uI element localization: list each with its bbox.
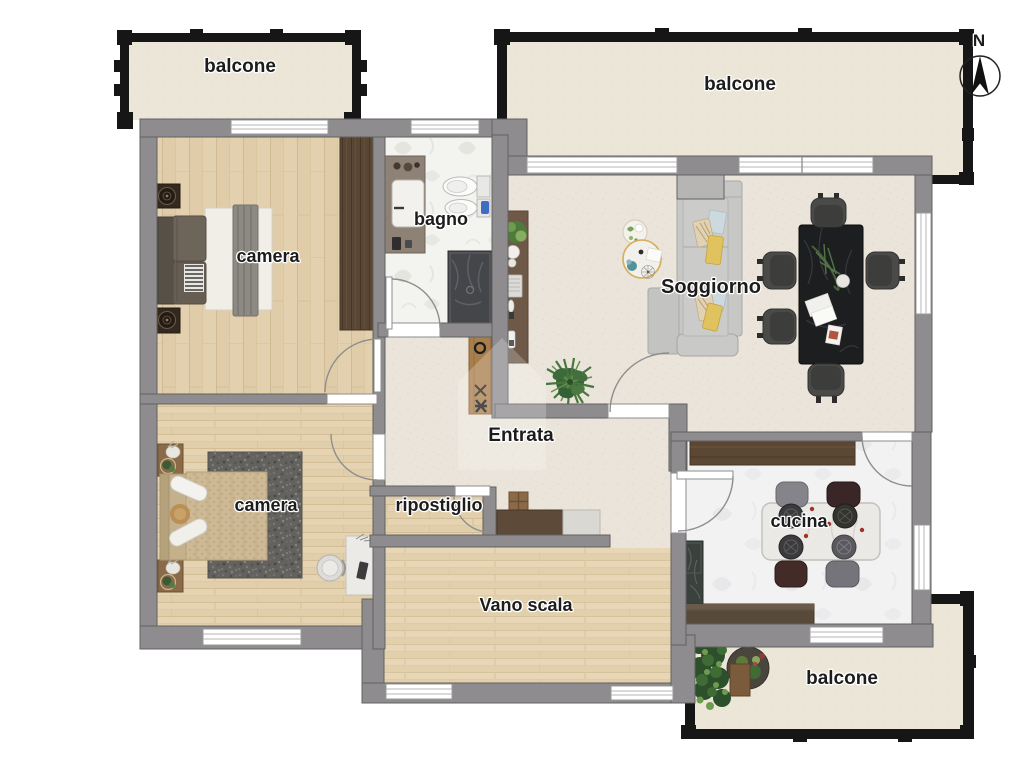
svg-text:camera: camera xyxy=(234,495,298,515)
svg-text:Soggiorno: Soggiorno xyxy=(661,276,761,298)
svg-text:cucina: cucina xyxy=(770,511,828,531)
svg-text:balcone: balcone xyxy=(806,668,878,689)
svg-text:balcone: balcone xyxy=(704,74,776,95)
svg-text:camera: camera xyxy=(236,246,300,266)
svg-text:Entrata: Entrata xyxy=(488,425,554,446)
svg-text:Vano scala: Vano scala xyxy=(479,595,573,615)
svg-text:balcone: balcone xyxy=(204,56,276,77)
svg-text:ripostiglio: ripostiglio xyxy=(396,495,483,515)
svg-text:bagno: bagno xyxy=(414,209,468,229)
svg-text:N: N xyxy=(973,31,985,50)
